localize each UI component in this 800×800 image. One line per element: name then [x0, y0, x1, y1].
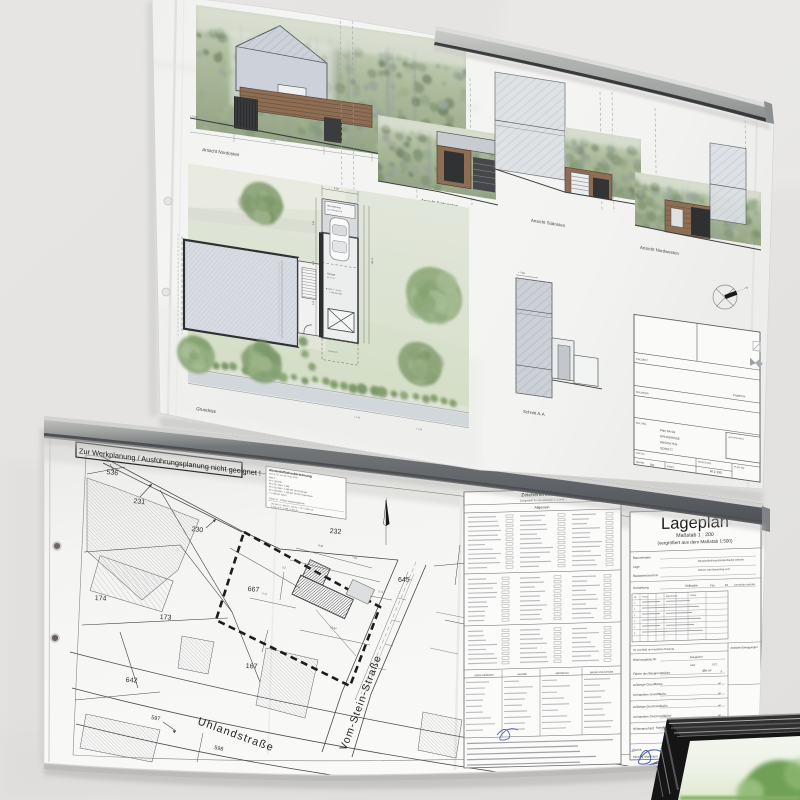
svg-text:Wohnungsbau Nr.: Wohnungsbau Nr.	[633, 657, 657, 662]
svg-text:Höhenanschluß: Höhenanschluß	[633, 726, 654, 731]
svg-text:Maßstab 1 : 200: Maßstab 1 : 200	[676, 532, 714, 539]
svg-text:167: 167	[246, 663, 258, 671]
svg-text:174: 174	[94, 595, 106, 603]
svg-text:Gemarkung: Gemarkung	[633, 585, 649, 590]
svg-text:15: 15	[725, 583, 729, 587]
svg-text:Baugebiet: Baugebiet	[690, 655, 703, 659]
svg-text:DG: DG	[650, 463, 655, 468]
svg-text:645: 645	[398, 577, 410, 584]
svg-text:Planung angefragen: Planung angefragen	[633, 754, 659, 759]
svg-text:Eigentümer: Eigentümer	[666, 595, 677, 598]
svg-text:Baulastverzeichnis: Baulastverzeichnis	[633, 573, 659, 578]
svg-text:642: 642	[126, 677, 138, 685]
svg-text:m²: m²	[718, 704, 721, 707]
svg-text:GRÜNDUNG: GRÜNDUNG	[555, 672, 569, 675]
svg-text:Bauvorhaben: Bauvorhaben	[633, 555, 651, 560]
svg-text:GFZ: GFZ	[712, 662, 718, 666]
svg-text:667: 667	[247, 586, 259, 594]
svg-text:GALERIE: GALERIE	[517, 673, 527, 676]
svg-text:Lage: Lage	[633, 565, 640, 569]
svg-text:MASSE UND ZAHLEN: MASSE UND ZAHLEN	[590, 671, 614, 675]
svg-text:i.A.: i.A.	[630, 749, 635, 753]
svg-text:m²: m²	[718, 682, 721, 685]
svg-text:173: 173	[159, 614, 171, 622]
svg-text:232: 232	[329, 528, 341, 536]
svg-text:185.40: 185.40	[372, 257, 374, 265]
svg-text:45K m²: 45K m²	[702, 668, 712, 672]
svg-text:Flurst.: Flurst.	[642, 595, 648, 598]
svg-text:Allgemein: Allgemein	[535, 505, 550, 509]
svg-text:536: 536	[106, 469, 119, 477]
svg-text:✓: ✓	[720, 670, 723, 674]
svg-text:230: 230	[191, 526, 204, 534]
svg-text:Nr.: Nr.	[634, 596, 637, 599]
svg-text:Uhlhache: Uhlhache	[685, 583, 698, 587]
svg-text:UBZ: UBZ	[690, 663, 696, 667]
svg-text:231: 231	[133, 498, 146, 506]
svg-text:Größe: Größe	[690, 594, 697, 597]
svg-text:m²: m²	[718, 692, 721, 695]
svg-text:Flur: Flur	[710, 583, 715, 587]
